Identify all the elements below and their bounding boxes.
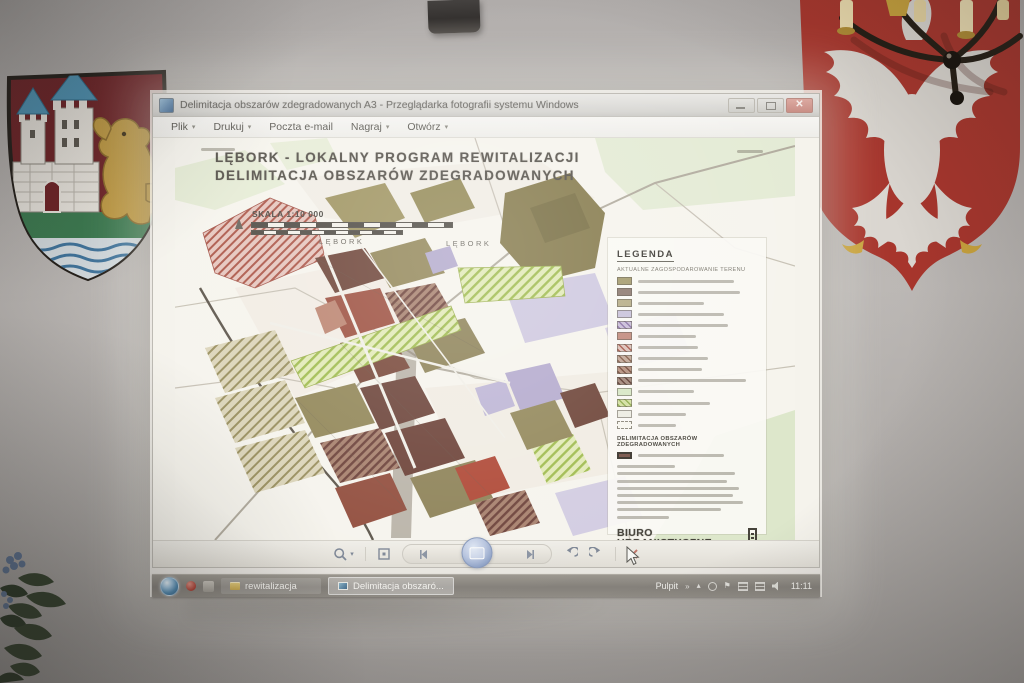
legend-swatch bbox=[617, 332, 632, 340]
navigation-pill bbox=[402, 544, 552, 564]
tray-flag-icon[interactable]: ⚑ bbox=[724, 582, 731, 590]
menu-item-otw-rz[interactable]: Otwórz▾ bbox=[399, 119, 456, 135]
mouse-cursor bbox=[625, 546, 641, 566]
close-icon: ✕ bbox=[787, 99, 812, 112]
legend-item-label bbox=[638, 402, 710, 405]
legend-item-label bbox=[638, 390, 694, 393]
tray-expand-chevron-icon[interactable]: » bbox=[685, 582, 689, 591]
legend-item-label bbox=[638, 291, 740, 294]
slideshow-icon bbox=[469, 547, 484, 559]
legend-item-label bbox=[638, 357, 708, 360]
tray-status-icon[interactable] bbox=[708, 582, 717, 591]
next-button[interactable] bbox=[522, 549, 535, 560]
wall-speaker bbox=[427, 0, 480, 34]
legend-swatch bbox=[617, 388, 632, 396]
legend-item bbox=[617, 410, 757, 418]
menu-bar: Plik▾Drukuj▾Poczta e-mailNagraj▾Otwórz▾ bbox=[153, 117, 819, 138]
polish-eagle-emblem bbox=[794, 0, 1024, 296]
legend-section2-heading: DELIMITACJA OBSZARÓW ZDEGRADOWANYCH bbox=[617, 436, 757, 448]
legend-item bbox=[617, 421, 757, 429]
slideshow-button[interactable] bbox=[461, 537, 492, 568]
start-button[interactable] bbox=[160, 577, 179, 596]
legend-swatch bbox=[617, 355, 632, 363]
previous-button[interactable] bbox=[419, 549, 432, 560]
taskbar-button-label: Delimitacja obszaró... bbox=[353, 581, 444, 592]
viewer-toolbar: ▾ bbox=[153, 540, 819, 567]
legend-area-list bbox=[617, 465, 757, 518]
legend-heading: LEGENDA bbox=[617, 249, 674, 262]
legend-delimitation-swatch bbox=[617, 452, 632, 459]
legend-item-label bbox=[638, 413, 686, 416]
map-scale-label: SKALA 1:10 000 bbox=[252, 209, 324, 219]
legend-swatch bbox=[617, 310, 632, 318]
map-title-line2: DELIMITACJA OBSZARÓW ZDEGRADOWANYCH bbox=[215, 167, 580, 185]
chevron-down-icon: ▾ bbox=[192, 123, 196, 131]
legend-item-label bbox=[638, 346, 698, 349]
zoom-button[interactable]: ▾ bbox=[333, 547, 354, 562]
legend-subheading: AKTUALNE ZAGOSPODAROWANIE TERENU bbox=[617, 267, 757, 273]
legend-swatch bbox=[617, 277, 632, 285]
photo-icon bbox=[338, 582, 348, 590]
taskbar-clock: 11:11 bbox=[791, 581, 812, 591]
legend-swatch bbox=[617, 377, 632, 385]
scale-bar bbox=[251, 222, 453, 228]
minimize-icon bbox=[736, 107, 745, 109]
photo-viewer-window: Delimitacja obszarów zdegradowanych A3 -… bbox=[152, 93, 820, 568]
legend-swatch bbox=[617, 299, 632, 307]
system-tray: Pulpit » ▴ ⚑ 11:11 bbox=[656, 581, 812, 591]
taskbar-button-rewitalizacja[interactable]: rewitalizacja bbox=[221, 578, 321, 594]
legend-items bbox=[617, 277, 757, 429]
taskbar-app-icon-gray[interactable] bbox=[203, 581, 214, 592]
menu-item-label: Plik bbox=[171, 121, 188, 133]
title-bar[interactable]: Delimitacja obszarów zdegradowanych A3 -… bbox=[153, 94, 819, 117]
legend-item-label bbox=[638, 379, 746, 382]
bureau-logo-mark-icon bbox=[748, 528, 757, 540]
map-title-line1: LĘBORK - LOKALNY PROGRAM REWITALIZACJI bbox=[215, 149, 580, 167]
legend-swatch bbox=[617, 410, 632, 418]
actual-size-button[interactable] bbox=[377, 547, 391, 561]
map-sheet-note-2 bbox=[737, 150, 763, 153]
maximize-button[interactable] bbox=[757, 98, 784, 113]
menu-item-label: Otwórz bbox=[407, 121, 440, 133]
menu-item-label: Nagraj bbox=[351, 121, 382, 133]
folder-icon bbox=[230, 582, 240, 590]
map-legend: LEGENDA AKTUALNE ZAGOSPODAROWANIE TERENU… bbox=[608, 238, 766, 534]
legend-item bbox=[617, 344, 757, 352]
magnifier-icon bbox=[333, 547, 348, 562]
map-sheet-note bbox=[201, 148, 235, 151]
minimize-button[interactable] bbox=[728, 98, 755, 113]
toolbar-separator bbox=[615, 547, 616, 561]
legend-swatch bbox=[617, 399, 632, 407]
photo-viewer-app-icon bbox=[159, 98, 174, 113]
volume-icon[interactable] bbox=[772, 582, 782, 591]
rotate-cw-icon bbox=[589, 547, 604, 561]
legend-item-label bbox=[638, 424, 676, 427]
legend-item bbox=[617, 288, 757, 296]
legend-swatch bbox=[617, 344, 632, 352]
rotate-cw-button[interactable] bbox=[589, 547, 604, 561]
city-label-lebork-2: LĘBORK bbox=[446, 239, 491, 248]
legend-item bbox=[617, 277, 757, 285]
legend-item bbox=[617, 355, 757, 363]
legend-item-label bbox=[638, 335, 696, 338]
city-label-lebork: LĘBORK bbox=[319, 237, 364, 246]
taskbar-button-label: rewitalizacja bbox=[245, 581, 297, 592]
window-title: Delimitacja obszarów zdegradowanych A3 -… bbox=[180, 99, 722, 111]
rotate-ccw-button[interactable] bbox=[563, 547, 578, 561]
actual-size-icon bbox=[377, 547, 391, 561]
legend-swatch bbox=[617, 366, 632, 374]
menu-item-poczta-e-mail[interactable]: Poczta e-mail bbox=[261, 119, 341, 135]
bureau-logo-text: BIURO URBANISTYCZNE bbox=[617, 529, 712, 540]
legend-item bbox=[617, 388, 757, 396]
map-title: LĘBORK - LOKALNY PROGRAM REWITALIZACJI D… bbox=[215, 149, 580, 184]
legend-delimitation-item bbox=[617, 452, 757, 459]
projected-screen: Delimitacja obszarów zdegradowanych A3 -… bbox=[150, 90, 822, 597]
chevron-down-icon: ▾ bbox=[445, 123, 449, 131]
taskbar-app-icon-red[interactable] bbox=[186, 581, 196, 591]
menu-item-nagraj[interactable]: Nagraj▾ bbox=[343, 119, 397, 135]
legend-item bbox=[617, 399, 757, 407]
plant bbox=[0, 548, 72, 683]
legend-item bbox=[617, 377, 757, 385]
menu-item-label: Poczta e-mail bbox=[269, 121, 333, 133]
tray-network-icon[interactable] bbox=[738, 582, 748, 591]
north-arrow-icon bbox=[235, 218, 243, 229]
menu-item-drukuj[interactable]: Drukuj▾ bbox=[205, 119, 259, 135]
windows-taskbar: rewitalizacja Delimitacja obszaró... Pul… bbox=[152, 574, 820, 597]
legend-item-label bbox=[638, 313, 724, 316]
legend-item bbox=[617, 299, 757, 307]
legend-swatch bbox=[617, 321, 632, 329]
maximize-icon bbox=[766, 102, 776, 110]
photo-content: LĘBORK - LOKALNY PROGRAM REWITALIZACJI D… bbox=[153, 138, 819, 540]
chevron-down-icon: ▾ bbox=[248, 123, 252, 131]
legend-item bbox=[617, 321, 757, 329]
legend-item bbox=[617, 332, 757, 340]
rotate-ccw-icon bbox=[563, 547, 578, 561]
desktop-toolbar-label[interactable]: Pulpit bbox=[656, 581, 679, 591]
tray-display-icon[interactable] bbox=[755, 582, 765, 591]
taskbar-button-delimitacja[interactable]: Delimitacja obszaró... bbox=[328, 577, 454, 595]
menu-item-label: Drukuj bbox=[213, 121, 243, 133]
close-button[interactable]: ✕ bbox=[786, 98, 813, 113]
legend-delimitation-label bbox=[638, 454, 724, 457]
tray-arrow-icon[interactable]: ▴ bbox=[697, 582, 701, 590]
bureau-logo: BIURO URBANISTYCZNE bbox=[617, 528, 757, 540]
lebork-coat-of-arms bbox=[0, 64, 172, 288]
legend-swatch bbox=[617, 288, 632, 296]
scale-bar-2 bbox=[251, 230, 403, 235]
legend-swatch bbox=[617, 421, 632, 429]
legend-item-label bbox=[638, 280, 734, 283]
legend-item-label bbox=[638, 324, 728, 327]
legend-item bbox=[617, 366, 757, 374]
legend-item bbox=[617, 310, 757, 318]
legend-item-label bbox=[638, 302, 704, 305]
zoom-caret-icon: ▾ bbox=[350, 550, 354, 558]
legend-item-label bbox=[638, 368, 702, 371]
toolbar-separator bbox=[365, 547, 366, 561]
chevron-down-icon: ▾ bbox=[386, 123, 390, 131]
menu-item-plik[interactable]: Plik▾ bbox=[163, 119, 203, 135]
